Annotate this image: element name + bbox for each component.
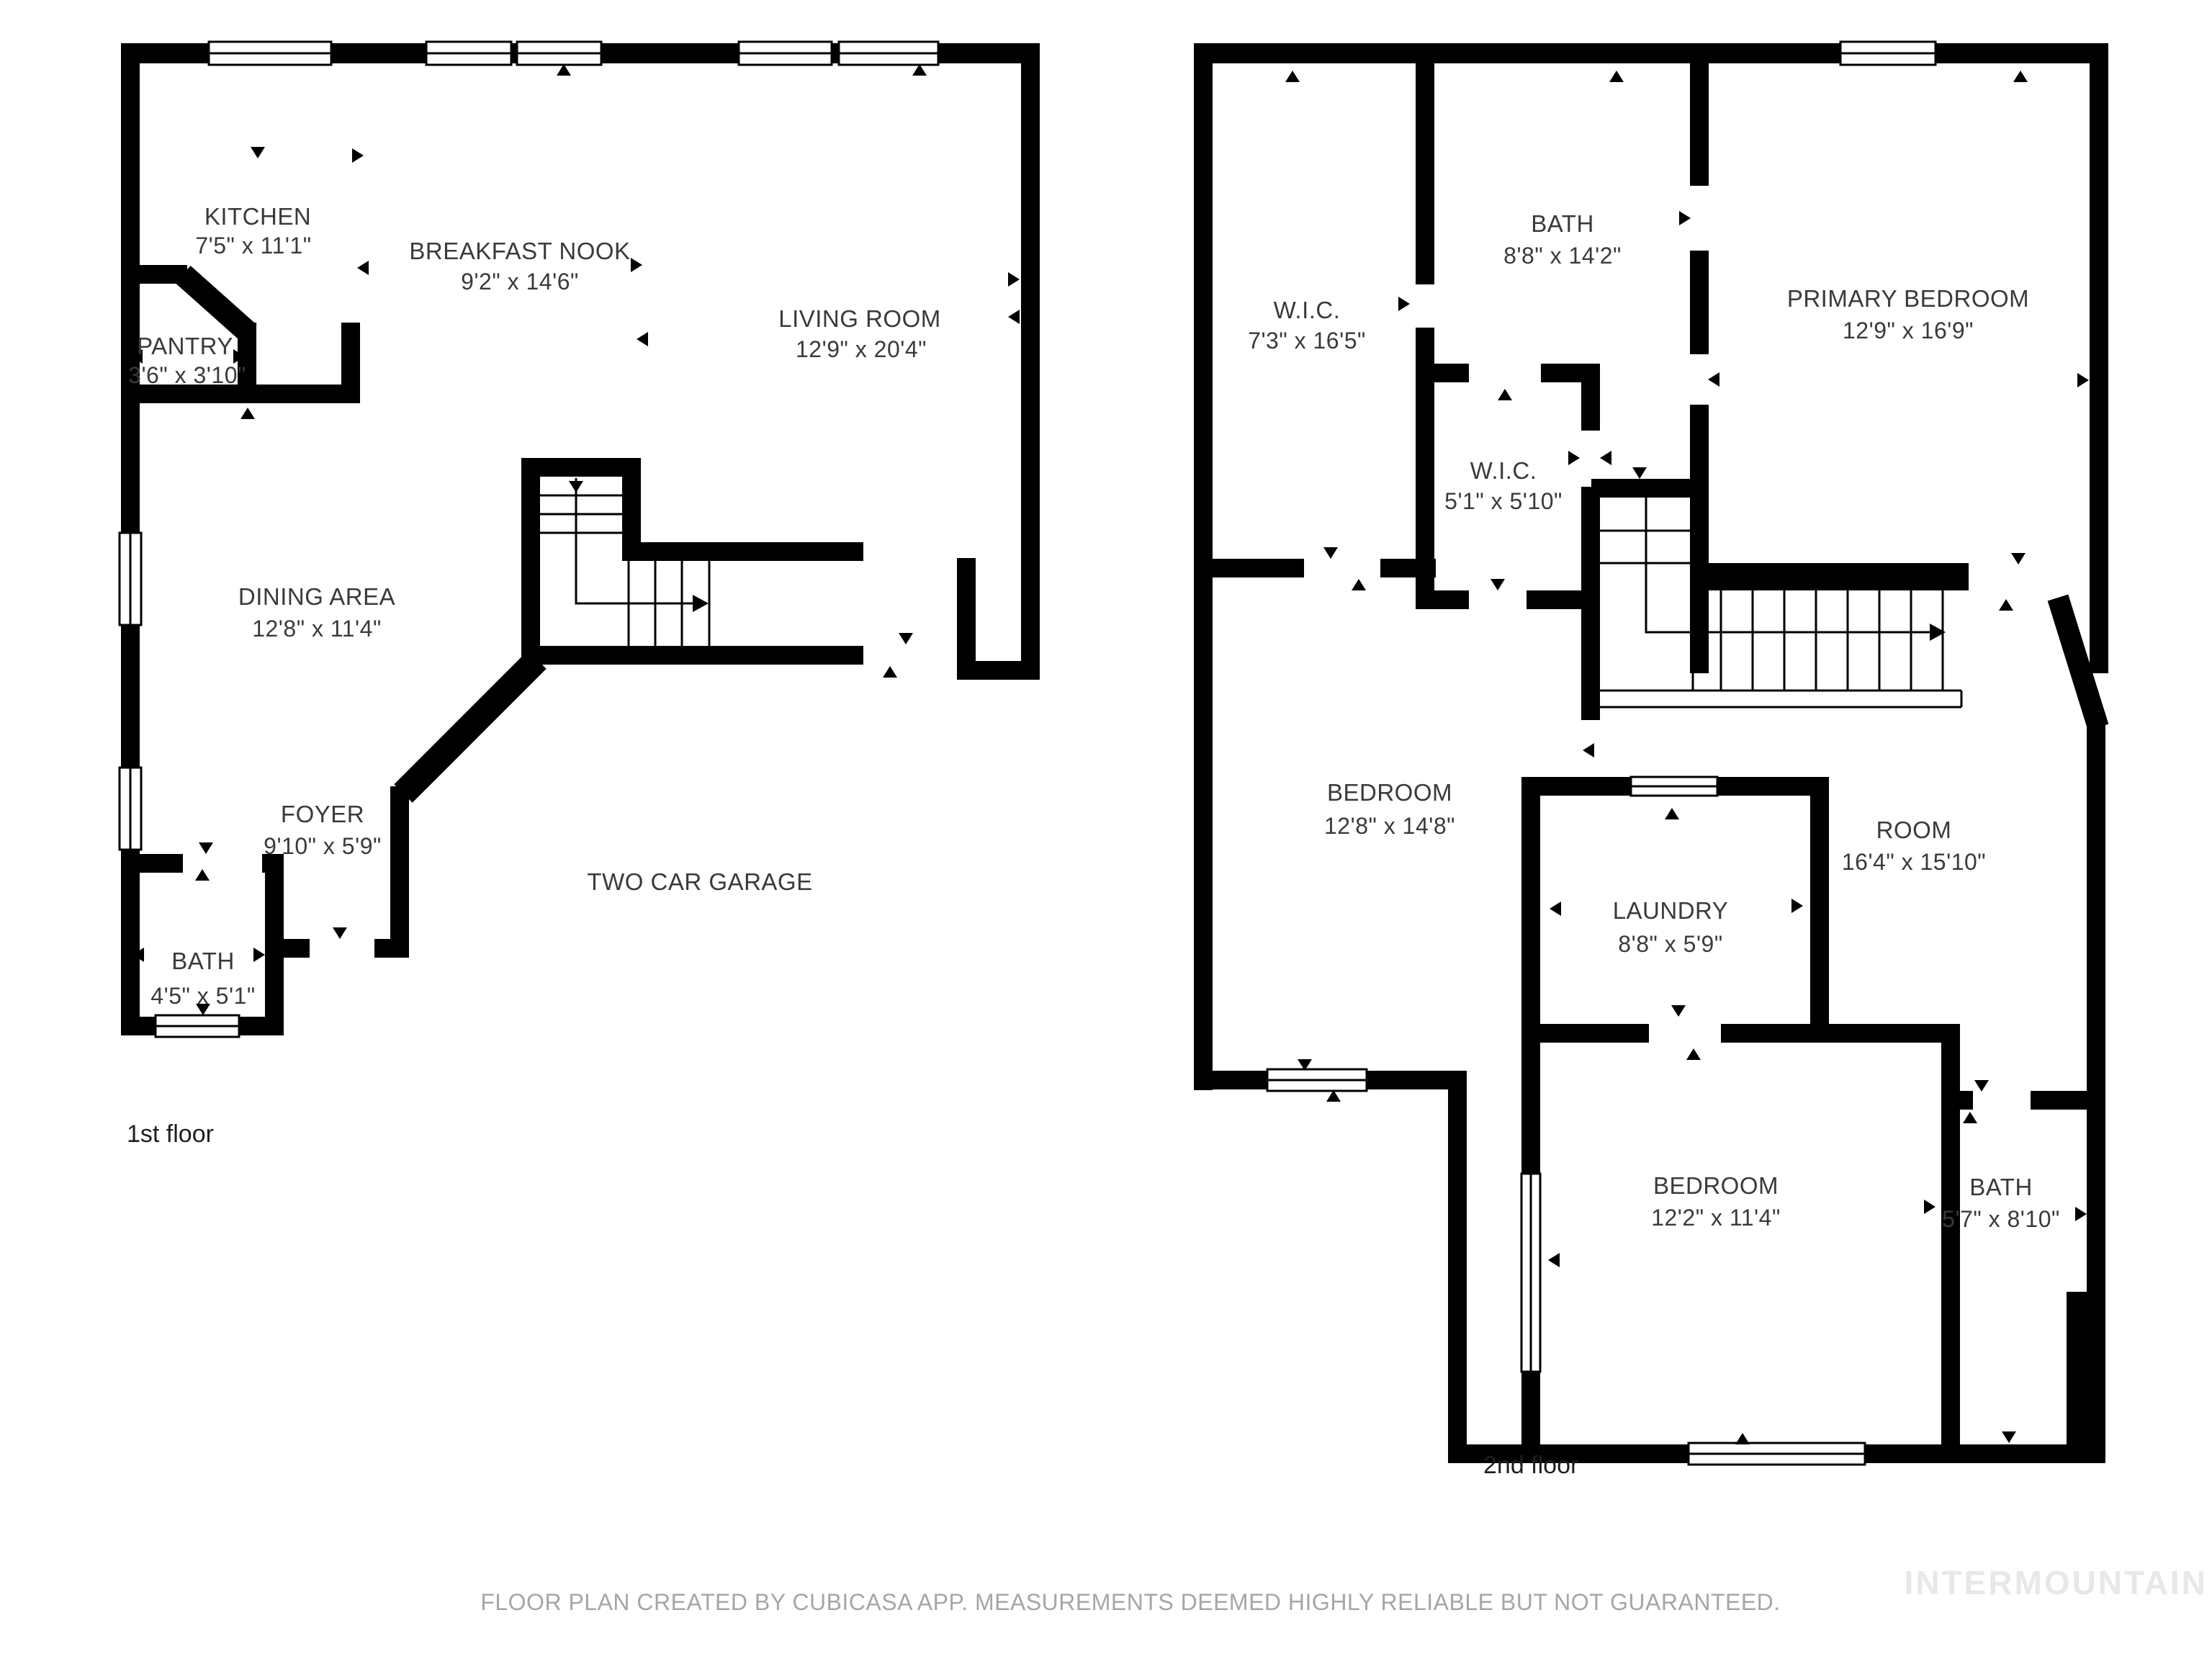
- window: [156, 1015, 239, 1037]
- door-marker: [1686, 1048, 1701, 1060]
- room-label-primary-bedroom: PRIMARY BEDROOM: [1787, 285, 2029, 312]
- door-marker: [1791, 899, 1803, 913]
- door-marker: [1632, 467, 1647, 479]
- door-marker: [2077, 373, 2089, 387]
- room-dims-bath-3: 5'7" x 8'10": [1942, 1206, 2060, 1232]
- room-dims-laundry: 8'8" x 5'9": [1618, 931, 1722, 957]
- second-floor-room-labels: W.I.C. 7'3" x 16'5" BATH 8'8" x 14'2" PR…: [1248, 210, 2060, 1479]
- door-marker: [357, 261, 369, 275]
- floor-plan-second-floor: W.I.C. 7'3" x 16'5" BATH 8'8" x 14'2" PR…: [1194, 42, 2108, 1479]
- window: [517, 42, 601, 65]
- window: [1840, 42, 1935, 65]
- door-marker: [1323, 547, 1338, 559]
- stair-arrowhead-icon: [693, 595, 709, 612]
- floor-plan-first-floor: KITCHEN 7'5" x 11'1" BREAKFAST NOOK 9'2"…: [120, 42, 1040, 1148]
- door-marker: [253, 948, 265, 962]
- door-marker: [1963, 1112, 1977, 1123]
- floor-label-1st: 1st floor: [127, 1120, 214, 1148]
- door-marker: [1008, 310, 1020, 324]
- room-label-dining-area: DINING AREA: [238, 583, 395, 610]
- room-dims-pantry: 3'6" x 3'10": [128, 362, 246, 388]
- door-marker: [2011, 553, 2026, 565]
- room-label-kitchen: KITCHEN: [204, 203, 311, 230]
- door-marker: [1708, 372, 1719, 387]
- door-marker: [569, 481, 583, 493]
- room-label-garage: TWO CAR GARAGE: [587, 868, 812, 895]
- door-marker: [2002, 1431, 2016, 1443]
- door-marker: [631, 258, 642, 272]
- door-marker: [333, 927, 347, 939]
- room-label-living-room: LIVING ROOM: [778, 305, 941, 332]
- door-marker: [637, 332, 648, 346]
- door-marker: [1550, 902, 1561, 916]
- floor-plan-canvas: KITCHEN 7'5" x 11'1" BREAKFAST NOOK 9'2"…: [0, 0, 2212, 1659]
- door-marker: [240, 408, 255, 419]
- room-dims-primary-bedroom: 12'9" x 16'9": [1843, 318, 1974, 343]
- room-dims-wic-2: 5'1" x 5'10": [1444, 488, 1563, 514]
- room-label-wic-1: W.I.C.: [1274, 297, 1341, 323]
- room-label-bath-2: BATH: [1531, 210, 1594, 237]
- room-dims-living-room: 12'9" x 20'4": [796, 336, 927, 362]
- room-dims-dining-area: 12'8" x 11'4": [252, 616, 382, 642]
- window: [739, 42, 832, 65]
- door-marker: [2075, 1207, 2087, 1221]
- room-dims-kitchen: 7'5" x 11'1": [195, 233, 311, 258]
- room-label-wic-2: W.I.C.: [1470, 457, 1537, 484]
- door-marker: [1498, 389, 1512, 400]
- room-label-bath-1: BATH: [171, 948, 235, 974]
- footer: FLOOR PLAN CREATED BY CUBICASA APP. MEAS…: [480, 1564, 2208, 1615]
- window: [426, 42, 511, 65]
- window: [1267, 1069, 1367, 1091]
- door-marker: [899, 633, 913, 644]
- room-label-pantry: PANTRY: [137, 333, 233, 359]
- door-marker: [1285, 71, 1300, 82]
- door-marker: [251, 147, 265, 158]
- door-marker: [1352, 579, 1366, 590]
- door-marker: [1008, 272, 1020, 287]
- door-marker: [1671, 1005, 1686, 1017]
- disclaimer-text: FLOOR PLAN CREATED BY CUBICASA APP. MEAS…: [480, 1589, 1780, 1615]
- window: [120, 768, 141, 850]
- room-dims-room: 16'4" x 15'10": [1842, 849, 1986, 875]
- wide-opening: [1631, 777, 1717, 796]
- door-marker: [1583, 743, 1594, 757]
- window: [120, 533, 141, 625]
- door-marker: [2013, 71, 2028, 82]
- door-marker: [1568, 451, 1580, 465]
- room-dims-bedroom-1: 12'8" x 14'8": [1324, 813, 1455, 839]
- wide-opening: [1521, 1174, 1540, 1372]
- room-label-bath-3: BATH: [1969, 1174, 2033, 1200]
- door-marker: [195, 869, 210, 881]
- room-label-foyer: FOYER: [281, 801, 364, 827]
- room-label-breakfast-nook: BREAKFAST NOOK: [409, 238, 630, 264]
- watermark-text: INTERMOUNTAIN: [1905, 1564, 2208, 1601]
- second-floor-walls: [1194, 43, 2108, 1463]
- room-dims-bedroom-2: 12'2" x 11'4": [1651, 1205, 1781, 1231]
- room-dims-foyer: 9'10" x 5'9": [264, 833, 382, 859]
- room-label-laundry: LAUNDRY: [1613, 897, 1729, 924]
- door-marker: [1665, 808, 1679, 819]
- door-marker: [1735, 1433, 1750, 1444]
- room-label-bedroom-2: BEDROOM: [1653, 1172, 1779, 1199]
- door-marker: [1609, 71, 1624, 82]
- first-floor-walls: [121, 43, 1040, 1035]
- room-dims-bath-2: 8'8" x 14'2": [1503, 243, 1622, 269]
- door-marker: [1491, 579, 1505, 590]
- door-marker: [352, 148, 364, 163]
- door-marker: [199, 842, 213, 854]
- room-label-room: ROOM: [1876, 817, 1952, 843]
- door-marker: [1548, 1253, 1560, 1267]
- second-floor-staircase: [1598, 498, 1961, 707]
- door-marker: [1999, 599, 2013, 611]
- door-marker: [1924, 1200, 1935, 1214]
- door-marker: [1679, 211, 1691, 225]
- door-marker: [1398, 297, 1410, 311]
- door-marker: [883, 666, 897, 678]
- door-marker: [1974, 1080, 1989, 1092]
- room-dims-wic-1: 7'3" x 16'5": [1248, 328, 1366, 354]
- floor-label-2nd: 2nd floor: [1483, 1452, 1578, 1479]
- window: [209, 42, 331, 65]
- window: [839, 42, 938, 65]
- door-marker: [1600, 451, 1611, 465]
- window: [1689, 1443, 1865, 1465]
- room-dims-breakfast-nook: 9'2" x 14'6": [461, 269, 579, 295]
- room-dims-bath-1: 4'5" x 5'1": [150, 983, 255, 1009]
- room-label-bedroom-1: BEDROOM: [1327, 779, 1452, 806]
